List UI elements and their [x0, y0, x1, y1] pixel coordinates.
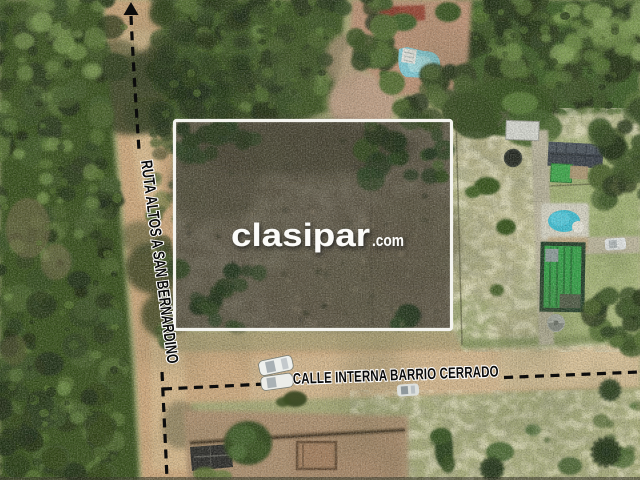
svg-text:.com: .com — [372, 231, 404, 250]
svg-text:clasipar: clasipar — [231, 217, 370, 253]
